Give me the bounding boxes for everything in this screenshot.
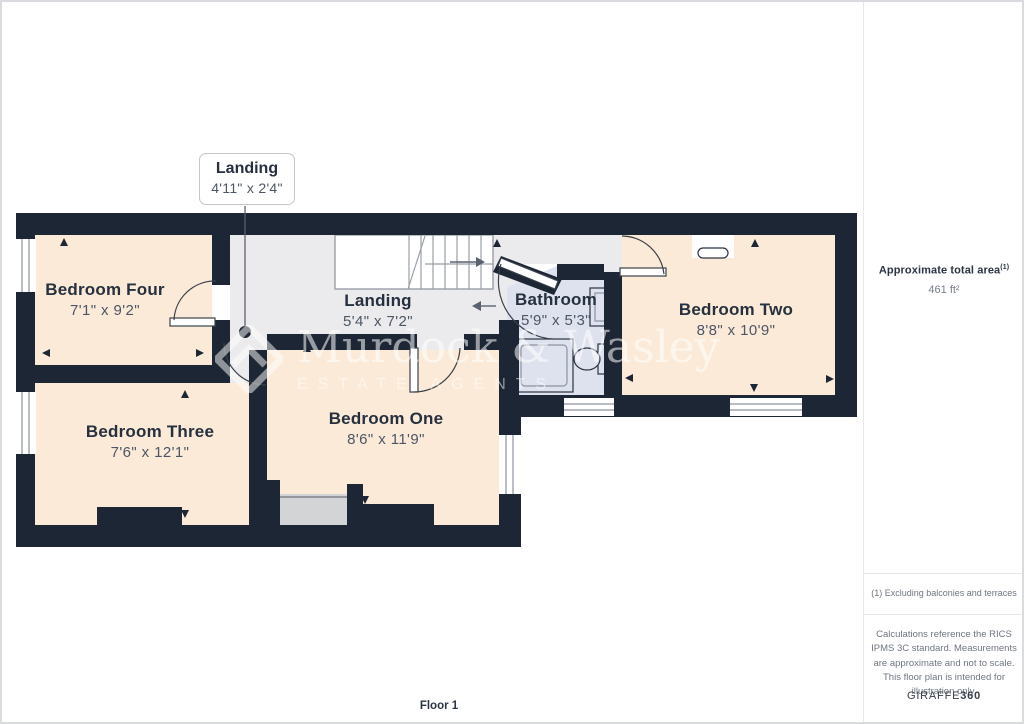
bay-recess bbox=[280, 494, 347, 525]
wall-bottom-right bbox=[499, 395, 857, 417]
callout-anchor-dot bbox=[239, 326, 251, 338]
room-dims: 8'6" x 11'9" bbox=[329, 429, 444, 450]
window-bedroom-two bbox=[730, 398, 802, 416]
floorplan-drawing bbox=[2, 2, 864, 724]
floorplan-page: Murdock & Wasley ESTATE AGENTS Landing 4… bbox=[0, 0, 1024, 724]
wall-right bbox=[835, 213, 857, 417]
recess-jamb-left bbox=[264, 480, 280, 526]
landing-corridor-floor bbox=[499, 235, 604, 264]
sidebar-rule-1 bbox=[864, 573, 1024, 574]
stairs bbox=[335, 235, 493, 289]
wall-b4-lower bbox=[212, 320, 230, 370]
floor-label: Floor 1 bbox=[420, 700, 458, 712]
room-dims: 8'8" x 10'9" bbox=[679, 320, 793, 341]
room-label-bedroom-one: Bedroom One 8'6" x 11'9" bbox=[329, 408, 444, 450]
toilet-bowl bbox=[574, 348, 600, 370]
wall-landing-b1-left bbox=[267, 334, 417, 350]
room-dims: 7'1" x 9'2" bbox=[45, 300, 165, 321]
window-bathroom bbox=[564, 398, 614, 416]
room-dims: 5'9" x 5'3" bbox=[515, 310, 597, 331]
total-area-block: Approximate total area(1) 461 ft² bbox=[864, 264, 1024, 296]
room-name: Landing bbox=[343, 290, 413, 311]
room-name: Bedroom Three bbox=[86, 421, 214, 442]
room-label-bedroom-two: Bedroom Two 8'8" x 10'9" bbox=[679, 299, 793, 341]
wall-top bbox=[16, 213, 857, 235]
room-name: Bedroom Four bbox=[45, 279, 165, 300]
wall-bath-b2 bbox=[604, 272, 622, 395]
window-bedroom-four bbox=[15, 239, 36, 292]
total-area-label: Approximate total area(1) bbox=[864, 264, 1024, 277]
wall-b4-upper bbox=[212, 235, 230, 285]
room-name: Bathroom bbox=[515, 289, 597, 310]
door-leaf-bedroom-one bbox=[410, 348, 418, 392]
wall-bottom-left bbox=[16, 525, 521, 547]
bedroom-two-doorway-floor bbox=[604, 235, 622, 272]
room-name: Bedroom Two bbox=[679, 299, 793, 320]
wall-bathroom-top bbox=[557, 264, 604, 280]
sidebar-footnote: (1) Excluding balconies and terraces bbox=[864, 588, 1024, 598]
fireplace bbox=[698, 248, 728, 258]
wall-b4-b3 bbox=[16, 365, 230, 383]
room-name: Bedroom One bbox=[329, 408, 444, 429]
fireplace-alcove bbox=[692, 231, 734, 258]
window-bedroom-one bbox=[499, 435, 521, 494]
wall-landing-b1-right bbox=[464, 334, 499, 350]
door-leaf-bedroom-two bbox=[620, 268, 666, 276]
room-label-bedroom-four: Bedroom Four 7'1" x 9'2" bbox=[45, 279, 165, 321]
total-area-value: 461 ft² bbox=[864, 284, 1024, 296]
sidebar-disclaimer: Calculations reference the RICS IPMS 3C … bbox=[870, 628, 1018, 699]
callout-title: Landing bbox=[200, 158, 294, 179]
sidebar-rule-2 bbox=[864, 614, 1024, 615]
door-leaf-bedroom-four bbox=[170, 318, 215, 326]
sidebar-divider bbox=[863, 2, 864, 724]
room-dims: 7'6" x 12'1" bbox=[86, 442, 214, 463]
brand-suffix: 360 bbox=[960, 690, 981, 702]
brand-logo: GIRAFFE360 bbox=[864, 690, 1024, 702]
room-label-bathroom: Bathroom 5'9" x 5'3" bbox=[515, 289, 597, 331]
room-label-bedroom-three: Bedroom Three 7'6" x 12'1" bbox=[86, 421, 214, 463]
brand-name: GIRAFFE bbox=[907, 690, 960, 702]
total-area-note-ref: (1) bbox=[1000, 264, 1009, 271]
chimney-bedroom-one bbox=[359, 504, 434, 525]
landing-callout: Landing 4'11" x 2'4" bbox=[199, 153, 295, 205]
chimney-bedroom-three bbox=[97, 507, 182, 526]
window-bedroom-three bbox=[15, 392, 36, 454]
bathtub-inner bbox=[521, 345, 567, 386]
room-dims: 5'4" x 7'2" bbox=[343, 311, 413, 332]
total-area-label-text: Approximate total area bbox=[879, 265, 1000, 277]
wall-bathroom-left bbox=[499, 320, 519, 414]
callout-dims: 4'11" x 2'4" bbox=[200, 179, 294, 197]
room-label-landing: Landing 5'4" x 7'2" bbox=[343, 290, 413, 332]
